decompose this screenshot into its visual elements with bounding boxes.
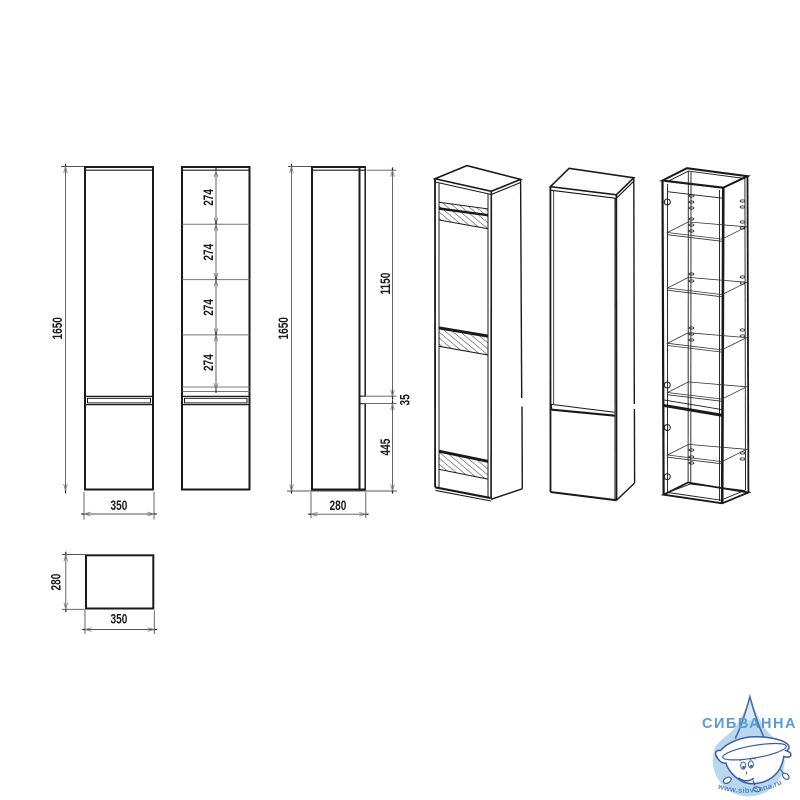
svg-text:274: 274 bbox=[200, 244, 216, 261]
svg-text:СИБВАННА: СИБВАННА bbox=[702, 716, 797, 732]
svg-text:35: 35 bbox=[397, 394, 413, 405]
svg-text:1650: 1650 bbox=[49, 317, 65, 340]
svg-text:274: 274 bbox=[200, 299, 216, 316]
svg-text:274: 274 bbox=[200, 189, 216, 206]
svg-text:274: 274 bbox=[200, 354, 216, 371]
svg-text:1150: 1150 bbox=[377, 272, 393, 294]
svg-text:280: 280 bbox=[330, 497, 347, 513]
svg-text:280: 280 bbox=[48, 574, 64, 591]
svg-text:350: 350 bbox=[111, 497, 128, 513]
svg-text:445: 445 bbox=[377, 439, 393, 456]
svg-text:1650: 1650 bbox=[275, 317, 291, 340]
svg-text:350: 350 bbox=[111, 611, 128, 627]
